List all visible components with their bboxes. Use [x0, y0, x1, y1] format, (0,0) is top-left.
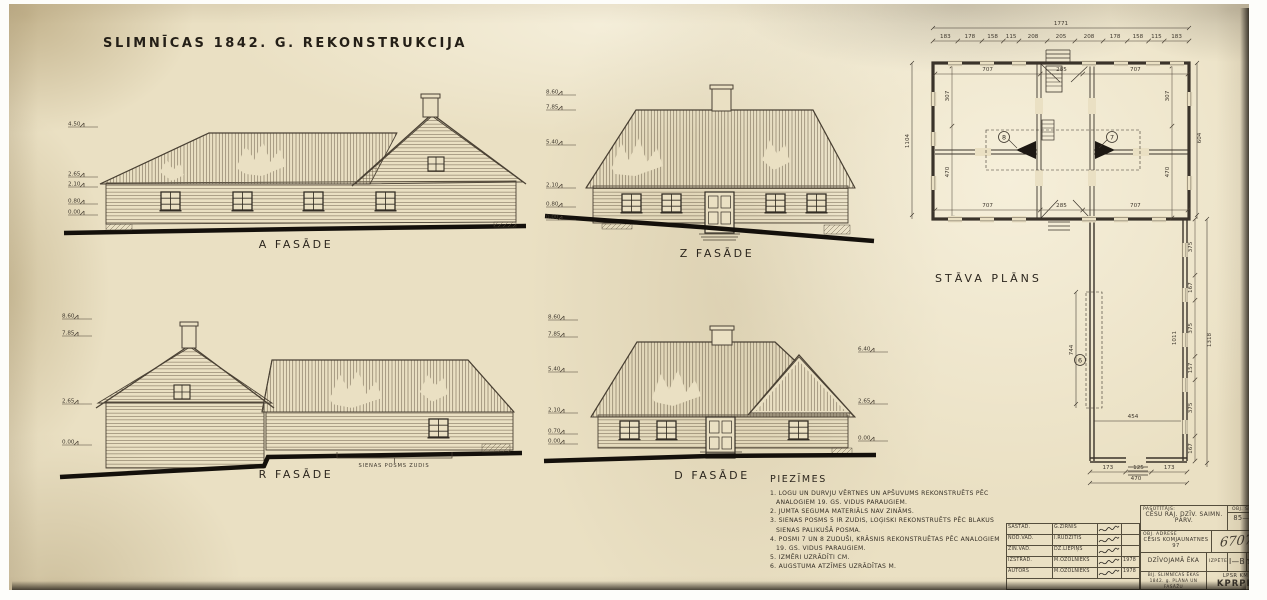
plan-dimension: 285 [1056, 67, 1067, 73]
plan-dimension: 1771 [1054, 21, 1069, 27]
staff-signature-cell [1098, 524, 1122, 535]
staff-name-cell: DZ.LIEPIŅŠ [1053, 546, 1098, 557]
signature-scribble [1098, 524, 1120, 534]
signature-scribble [1098, 535, 1120, 545]
facade-r-label: R FASĀDE [259, 468, 334, 481]
facade-r-drawing [60, 322, 522, 477]
staff-date [1122, 524, 1141, 525]
staff-role-cell: AUTORS [1007, 568, 1053, 579]
staff-date-cell [1122, 524, 1141, 535]
elevation-mark: 2.10 [68, 182, 81, 188]
page-margin-left [0, 0, 9, 600]
plan-dimension: 375 [1188, 402, 1194, 413]
elevation-mark: 0.00 [858, 436, 871, 442]
staff-name: M.OZOLNIEKS [1053, 568, 1097, 574]
plan-dimension: 285 [1056, 203, 1067, 209]
plan-dimension: 744 [1069, 344, 1075, 355]
plan-dimension: 470 [1131, 476, 1142, 482]
staff-name: DZ.LIEPIŅŠ [1053, 546, 1097, 552]
page-margin-top [0, 0, 1267, 4]
elevation-mark: 2.65 [62, 399, 75, 405]
elevation-mark: 2.10 [546, 183, 559, 189]
floor-plan-label: STĀVA PLĀNS [935, 272, 1042, 285]
notes-title: PIEZĪMES [770, 474, 1010, 485]
note-item: 4. POSMI 7 UN 8 ZUDUŠI, KRĀSNIS REKONSTR… [770, 535, 1010, 553]
staff-date-cell: 1978 [1122, 557, 1141, 568]
elevation-mark: 0.00 [68, 210, 81, 216]
staff-role-cell: NOD.VAD. [1007, 535, 1053, 546]
plan-dimension: 375 [1188, 241, 1194, 252]
facade-d-label: D FASĀDE [674, 469, 750, 482]
plan-dimension: 707 [1130, 203, 1141, 209]
plan-dimension: 125 [1133, 465, 1144, 471]
plan-dimension: 158 [1133, 34, 1144, 40]
elevation-mark: 8.60 [546, 90, 559, 96]
plan-dimension: 178 [1110, 34, 1121, 40]
facade-d-drawing [544, 326, 876, 461]
plan-dimension: 707 [1130, 67, 1141, 73]
stage-label: IZPĒTE [1207, 553, 1227, 564]
plan-dimension: 157 [1188, 362, 1194, 373]
plan-dimension: 470 [945, 166, 951, 177]
elevation-mark: 7.85 [548, 332, 561, 338]
plan-dimension: 470 [1165, 166, 1171, 177]
plan-dimension: 707 [982, 203, 993, 209]
elevation-mark: 4.50 [68, 122, 81, 128]
staff-role-cell: SASTĀD. [1007, 524, 1053, 535]
note-item: 5. IZMĒRI UZRĀDĪTI CM. [770, 553, 1010, 562]
elevation-mark: 7.85 [62, 331, 75, 337]
signature-scribble [1098, 546, 1120, 556]
plan-dimension: 167 [1188, 282, 1194, 293]
staff-name: M.OZOLNIEKS [1053, 557, 1097, 563]
plan-dimension: 173 [1164, 465, 1175, 471]
notes-block: PIEZĪMES 1. LOGU UN DURVJU VĒRTNES UN AP… [770, 474, 1010, 571]
plan-dimension: 1011 [1172, 330, 1178, 345]
plan-dimension: 173 [1102, 465, 1113, 471]
drawing-title: SLIMNĪCAS 1842. G. REKONSTRUKCIJA [103, 36, 467, 51]
elevation-mark: 0.00 [62, 440, 75, 446]
staff-date [1122, 535, 1141, 536]
elevation-mark: 7.85 [546, 105, 559, 111]
plan-dimension: 208 [1028, 34, 1039, 40]
staff-date-cell: 1978 [1122, 568, 1141, 579]
plan-dimension: 205 [1056, 34, 1067, 40]
elevation-mark: 0.70 [548, 429, 561, 435]
signature-scribble [1098, 568, 1120, 578]
elevation-mark: 8.60 [548, 315, 561, 321]
staff-signature-cell [1098, 557, 1122, 568]
plan-dimension: 208 [1084, 34, 1095, 40]
staff-table: SASTĀD.G.ZIRNISNOD.VAD.I.RUDZĪTISZIN.VAD… [1006, 523, 1140, 590]
elevation-mark: 0.80 [68, 199, 81, 205]
elevation-mark: 0.80 [546, 202, 559, 208]
note-item: 3. SIENAS POSMS 5 IR ZUDIS, LOĢISKI REKO… [770, 516, 1010, 534]
plan-dimension: 1318 [1207, 332, 1213, 347]
staff-role: AUTORS [1007, 568, 1052, 574]
facade-z-drawing [545, 85, 874, 241]
wing-number-6: 6 [1078, 357, 1082, 365]
plan-dimension: 115 [1151, 34, 1162, 40]
staff-role: ZIN.VAD. [1007, 546, 1052, 552]
plan-dimension: 454 [1128, 414, 1139, 420]
staff-date [1122, 546, 1141, 547]
drawing-sheet: 8 7 6 4.502.652.100.800.008.607.855.402.… [0, 0, 1267, 600]
staff-name-cell: I.RUDZĪTIS [1053, 535, 1098, 546]
plan-dimension: 604 [1197, 132, 1203, 143]
stove-number-8: 8 [1002, 134, 1006, 142]
wall-section-annotation: SIENAS POSMS ZUDIS [359, 463, 430, 469]
elevation-mark: 5.40 [548, 367, 561, 373]
plan-dimension: 183 [940, 34, 951, 40]
signature-scribble [1098, 557, 1120, 567]
note-item: 6. AUGSTUMA ATZĪMES UZRĀDĪTAS M. [770, 562, 1010, 571]
elevation-mark: 5.40 [546, 140, 559, 146]
stove-number-7: 7 [1110, 134, 1114, 142]
elevation-mark: 0.00 [548, 439, 561, 445]
staff-date: 1978 [1122, 557, 1141, 563]
staff-signature-cell [1098, 546, 1122, 557]
staff-date-cell [1122, 546, 1141, 557]
plan-dimension: 167 [1188, 443, 1194, 454]
staff-name-cell: M.OZOLNIEKS [1053, 568, 1098, 579]
plan-dimension: 307 [945, 90, 951, 101]
facade-a-label: A FASĀDE [259, 238, 334, 251]
staff-signature-cell [1098, 568, 1122, 579]
staff-role: NOD.VAD. [1007, 535, 1052, 541]
plan-dimension: 707 [982, 67, 993, 73]
plan-dimension: 115 [1006, 34, 1017, 40]
staff-name: G.ZIRNIS [1053, 524, 1097, 530]
line-art: 8 7 6 4.502.652.100.800.008.607.855.402.… [0, 0, 1267, 600]
staff-date-cell [1122, 535, 1141, 546]
elevation-mark: 2.65 [858, 399, 871, 405]
elevation-mark: 6.40 [858, 347, 871, 353]
client-value: CĒSU RAJ. DZĪV. SAIMN. PĀRV. [1141, 512, 1227, 524]
address-value: CĒSIS KOMJAUNATNES 97 [1141, 537, 1211, 549]
building-name: DZĪVOJAMĀ ĒKA [1141, 553, 1206, 564]
staff-name-cell: G.ZIRNIS [1053, 524, 1098, 535]
page-margin-bottom [0, 590, 1267, 600]
page-margin-right [1249, 0, 1267, 600]
note-item: 2. JUMTA SEGUMA MATERIĀLS NAV ZINĀMS. [770, 507, 1010, 516]
facade-z-label: Z FASĀDE [680, 247, 755, 260]
elevation-mark: 2.65 [68, 172, 81, 178]
staff-signature-cell [1098, 535, 1122, 546]
elevation-mark: 8.60 [62, 314, 75, 320]
scan-shadow-bottom [12, 581, 1246, 590]
staff-role-cell: ZIN.VAD. [1007, 546, 1053, 557]
staff-name-cell: M.OZOLNIEKS [1053, 557, 1098, 568]
staff-name: I.RUDZĪTIS [1053, 535, 1097, 541]
plan-dimension: 178 [965, 34, 976, 40]
note-item: 1. LOGU UN DURVJU VĒRTNES UN APŠUVUMS RE… [770, 489, 1010, 507]
elevation-mark: 0.00 [546, 215, 559, 221]
plan-dimension: 1104 [905, 133, 911, 148]
facade-a-drawing [64, 94, 526, 233]
plan-dimension: 375 [1188, 322, 1194, 333]
scan-shadow-right [1240, 8, 1249, 591]
plan-dimension: 307 [1165, 90, 1171, 101]
staff-role: SASTĀD. [1007, 524, 1052, 530]
staff-role-cell: IZSTRĀD. [1007, 557, 1053, 568]
staff-role: IZSTRĀD. [1007, 557, 1052, 563]
plan-dimension: 158 [987, 34, 998, 40]
plan-dimension: 183 [1171, 34, 1182, 40]
elevation-mark: 2.10 [548, 408, 561, 414]
staff-date: 1978 [1122, 568, 1141, 574]
